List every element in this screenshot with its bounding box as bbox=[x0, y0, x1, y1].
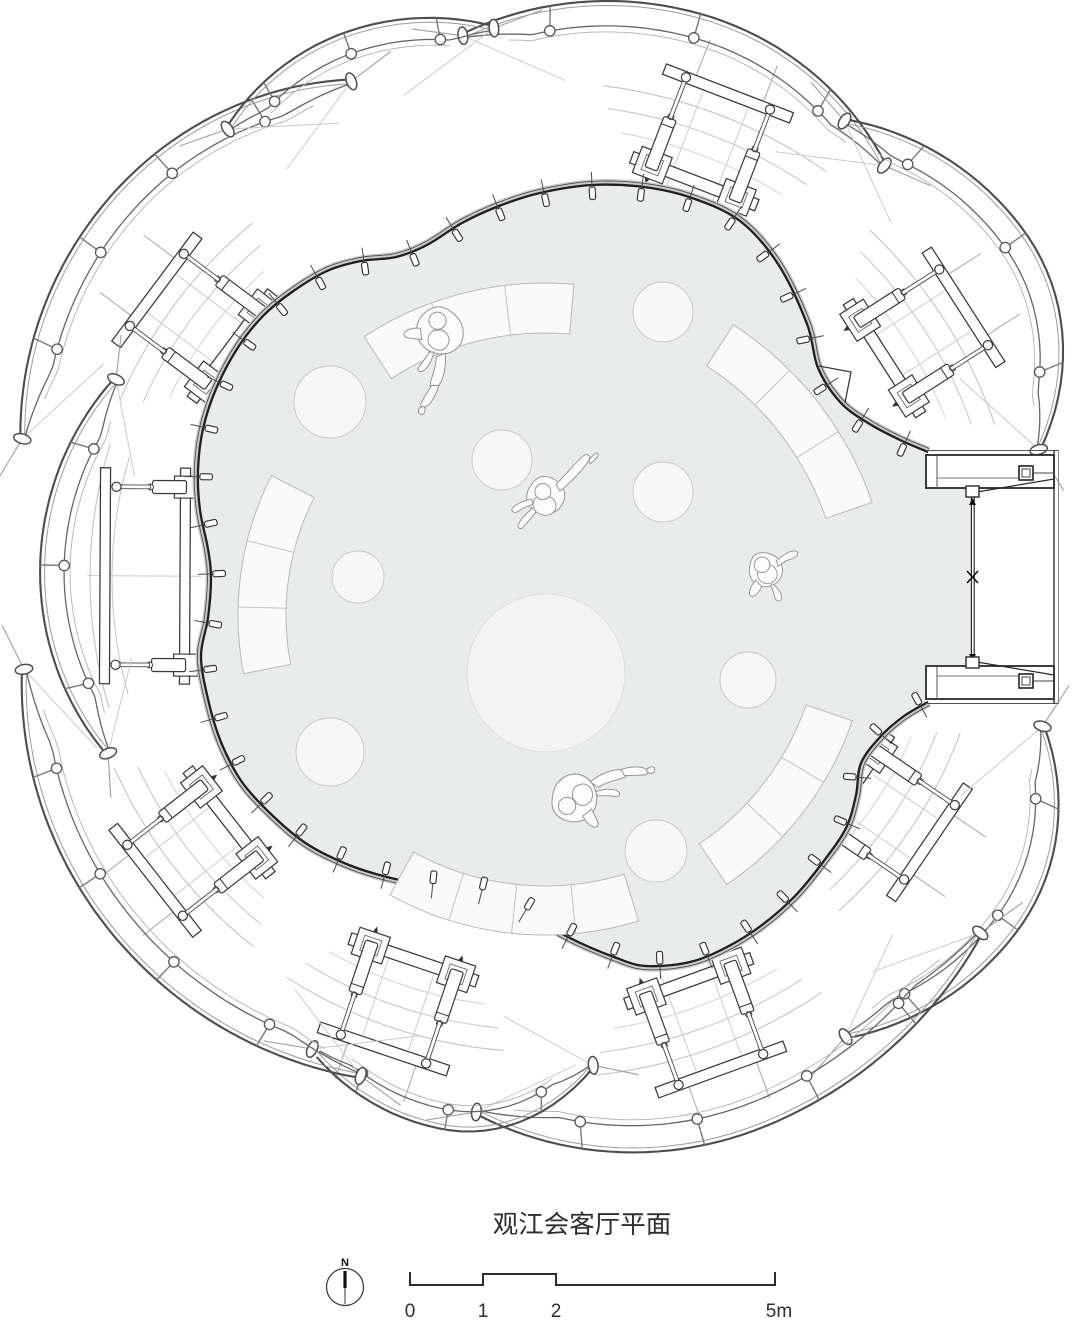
svg-text:2: 2 bbox=[551, 1301, 562, 1322]
svg-text:N: N bbox=[341, 1257, 349, 1269]
svg-text:5m: 5m bbox=[766, 1301, 792, 1322]
svg-text:0: 0 bbox=[405, 1301, 416, 1322]
svg-text:1: 1 bbox=[478, 1301, 489, 1322]
